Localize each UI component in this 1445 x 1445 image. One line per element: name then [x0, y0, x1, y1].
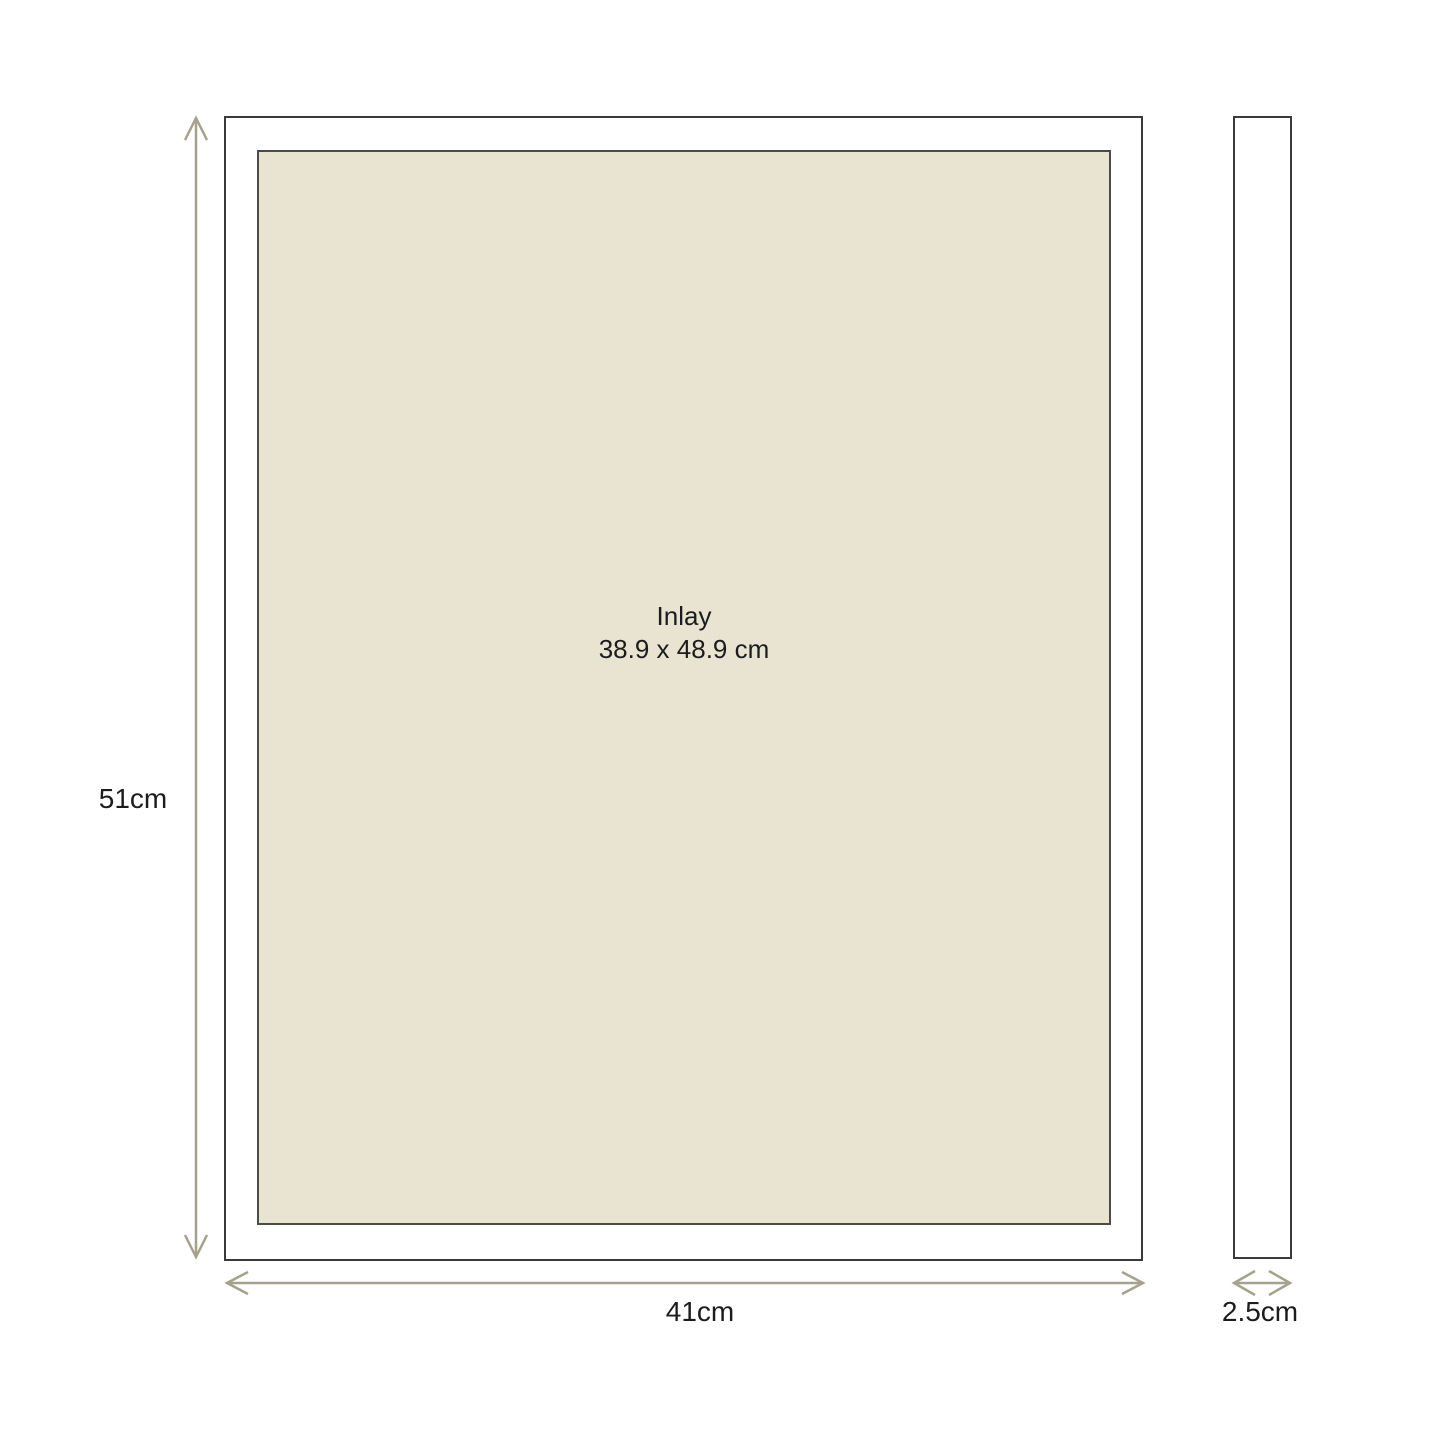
frame-side-view	[1233, 116, 1292, 1259]
inlay-area: Inlay 38.9 x 48.9 cm	[257, 150, 1111, 1225]
width-dimension-label: 41cm	[620, 1297, 780, 1327]
width-arrow	[227, 1272, 1143, 1294]
depth-arrow	[1234, 1271, 1290, 1295]
height-dimension-label: 51cm	[73, 784, 193, 814]
inlay-label: Inlay	[259, 600, 1109, 633]
frame-dimension-diagram: Inlay 38.9 x 48.9 cm 51cm 41cm 2.5cm	[0, 0, 1445, 1445]
height-arrow	[185, 118, 207, 1257]
depth-dimension-label: 2.5cm	[1180, 1297, 1340, 1327]
inlay-text: Inlay 38.9 x 48.9 cm	[259, 600, 1109, 666]
inlay-size: 38.9 x 48.9 cm	[259, 633, 1109, 666]
